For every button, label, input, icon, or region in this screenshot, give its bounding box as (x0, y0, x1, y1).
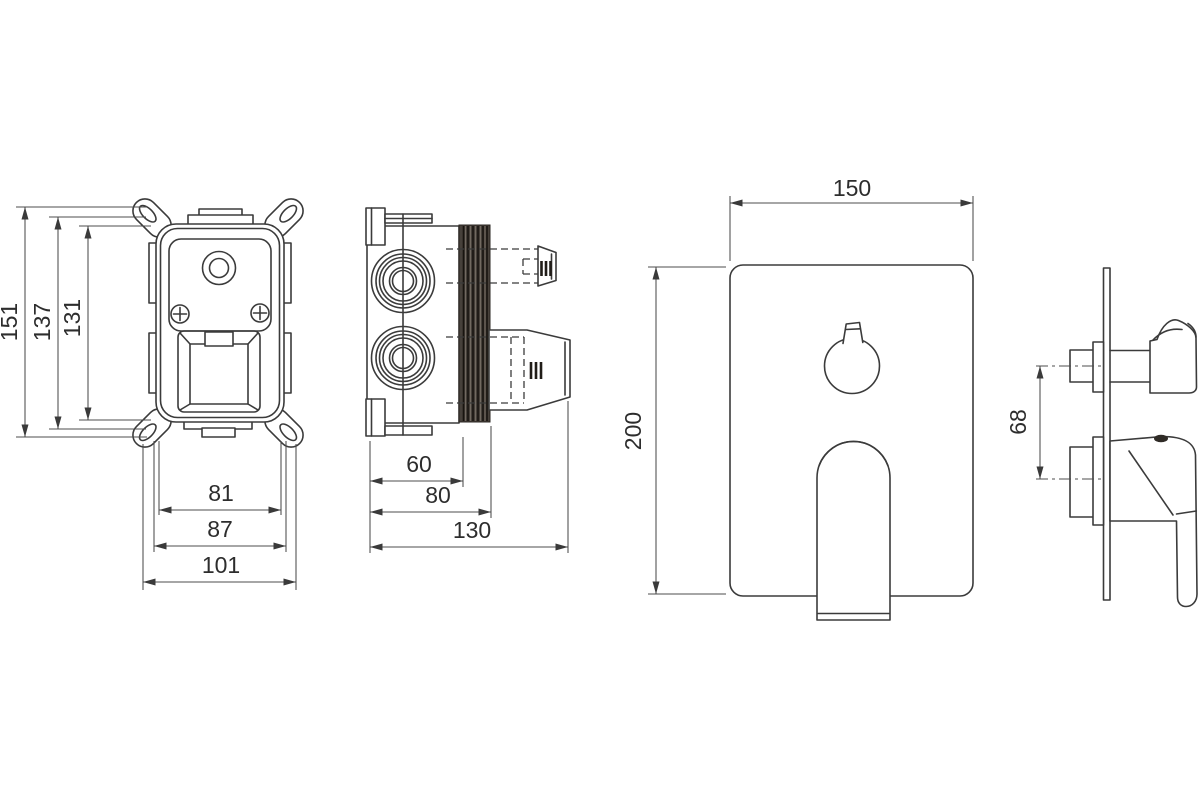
handle-button (1154, 435, 1168, 443)
valve-body-outline (156, 224, 284, 422)
valve-side-view: 60 80 130 (366, 208, 570, 553)
dim-label-101: 101 (202, 552, 240, 578)
wall-seal-band (459, 225, 490, 422)
dim-label-150: 150 (833, 175, 871, 201)
dim-label-81: 81 (208, 480, 234, 506)
trim-plate-side (1104, 268, 1111, 600)
dim-label-151: 151 (0, 303, 22, 341)
dim-label-130: 130 (453, 517, 491, 543)
handle-flange (1093, 437, 1104, 525)
technical-drawing-page: 151 137 131 81 87 101 (0, 0, 1200, 800)
dim-label-80: 80 (425, 482, 451, 508)
side-flange-top (366, 208, 385, 245)
diverter-knob-side (1070, 320, 1197, 393)
dim-valve-inner-height: 131 (59, 226, 151, 420)
stem-knurl-marks (542, 261, 551, 276)
dim-label-137: 137 (29, 303, 55, 341)
dim-label-60: 60 (406, 451, 432, 477)
side-tab-bottom (385, 426, 432, 435)
dim-handle-offset: 68 (1005, 366, 1044, 479)
lever-handle-side (1070, 435, 1197, 607)
bottom-tab-small (202, 428, 235, 437)
dim-label-200: 200 (620, 412, 646, 450)
handle-stem (1070, 447, 1096, 517)
mixer-lever-handle (817, 441, 890, 620)
dim-label-68: 68 (1005, 409, 1031, 435)
diverter-knob-pointer (843, 323, 863, 344)
screw-right (251, 304, 269, 322)
trim-side-view: 68 (1005, 268, 1197, 607)
dim-valve-inner-width: 81 (159, 441, 281, 515)
technical-drawing-canvas: 151 137 131 81 87 101 (0, 0, 1200, 800)
dim-trim-plate-height: 200 (620, 267, 726, 594)
recess-key-tab (205, 332, 233, 346)
side-flange-bottom (366, 399, 385, 436)
valve-front-view: 151 137 131 81 87 101 (0, 194, 308, 590)
dim-label-131: 131 (59, 299, 85, 337)
dim-label-87: 87 (207, 516, 233, 542)
knob-flange (1093, 342, 1104, 392)
trim-front-view: 150 200 (620, 175, 973, 620)
screw-left (171, 305, 189, 323)
dim-trim-plate-width: 150 (730, 175, 973, 261)
